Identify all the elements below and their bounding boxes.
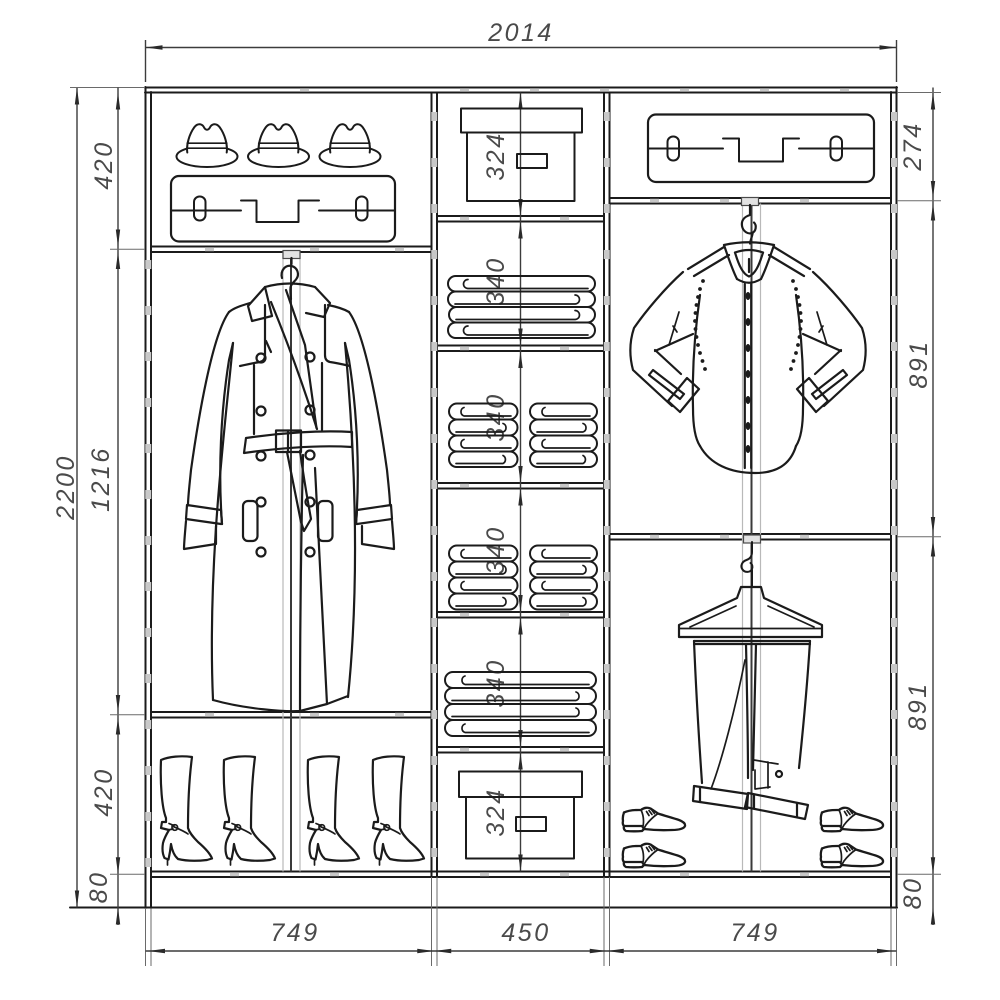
svg-text:749: 749	[270, 919, 319, 947]
svg-text:80: 80	[85, 871, 113, 904]
svg-text:891: 891	[905, 339, 933, 388]
svg-text:340: 340	[482, 256, 510, 305]
svg-text:1216: 1216	[87, 446, 115, 512]
svg-text:420: 420	[90, 140, 118, 189]
svg-text:340: 340	[482, 392, 510, 441]
svg-text:274: 274	[899, 121, 927, 171]
svg-text:324: 324	[482, 131, 510, 180]
svg-text:420: 420	[90, 767, 118, 816]
svg-text:891: 891	[904, 681, 932, 730]
svg-text:324: 324	[482, 787, 510, 836]
svg-text:2200: 2200	[52, 454, 80, 521]
svg-text:450: 450	[501, 919, 550, 947]
svg-text:80: 80	[899, 877, 927, 910]
svg-text:2014: 2014	[487, 19, 554, 47]
svg-text:749: 749	[730, 919, 779, 947]
